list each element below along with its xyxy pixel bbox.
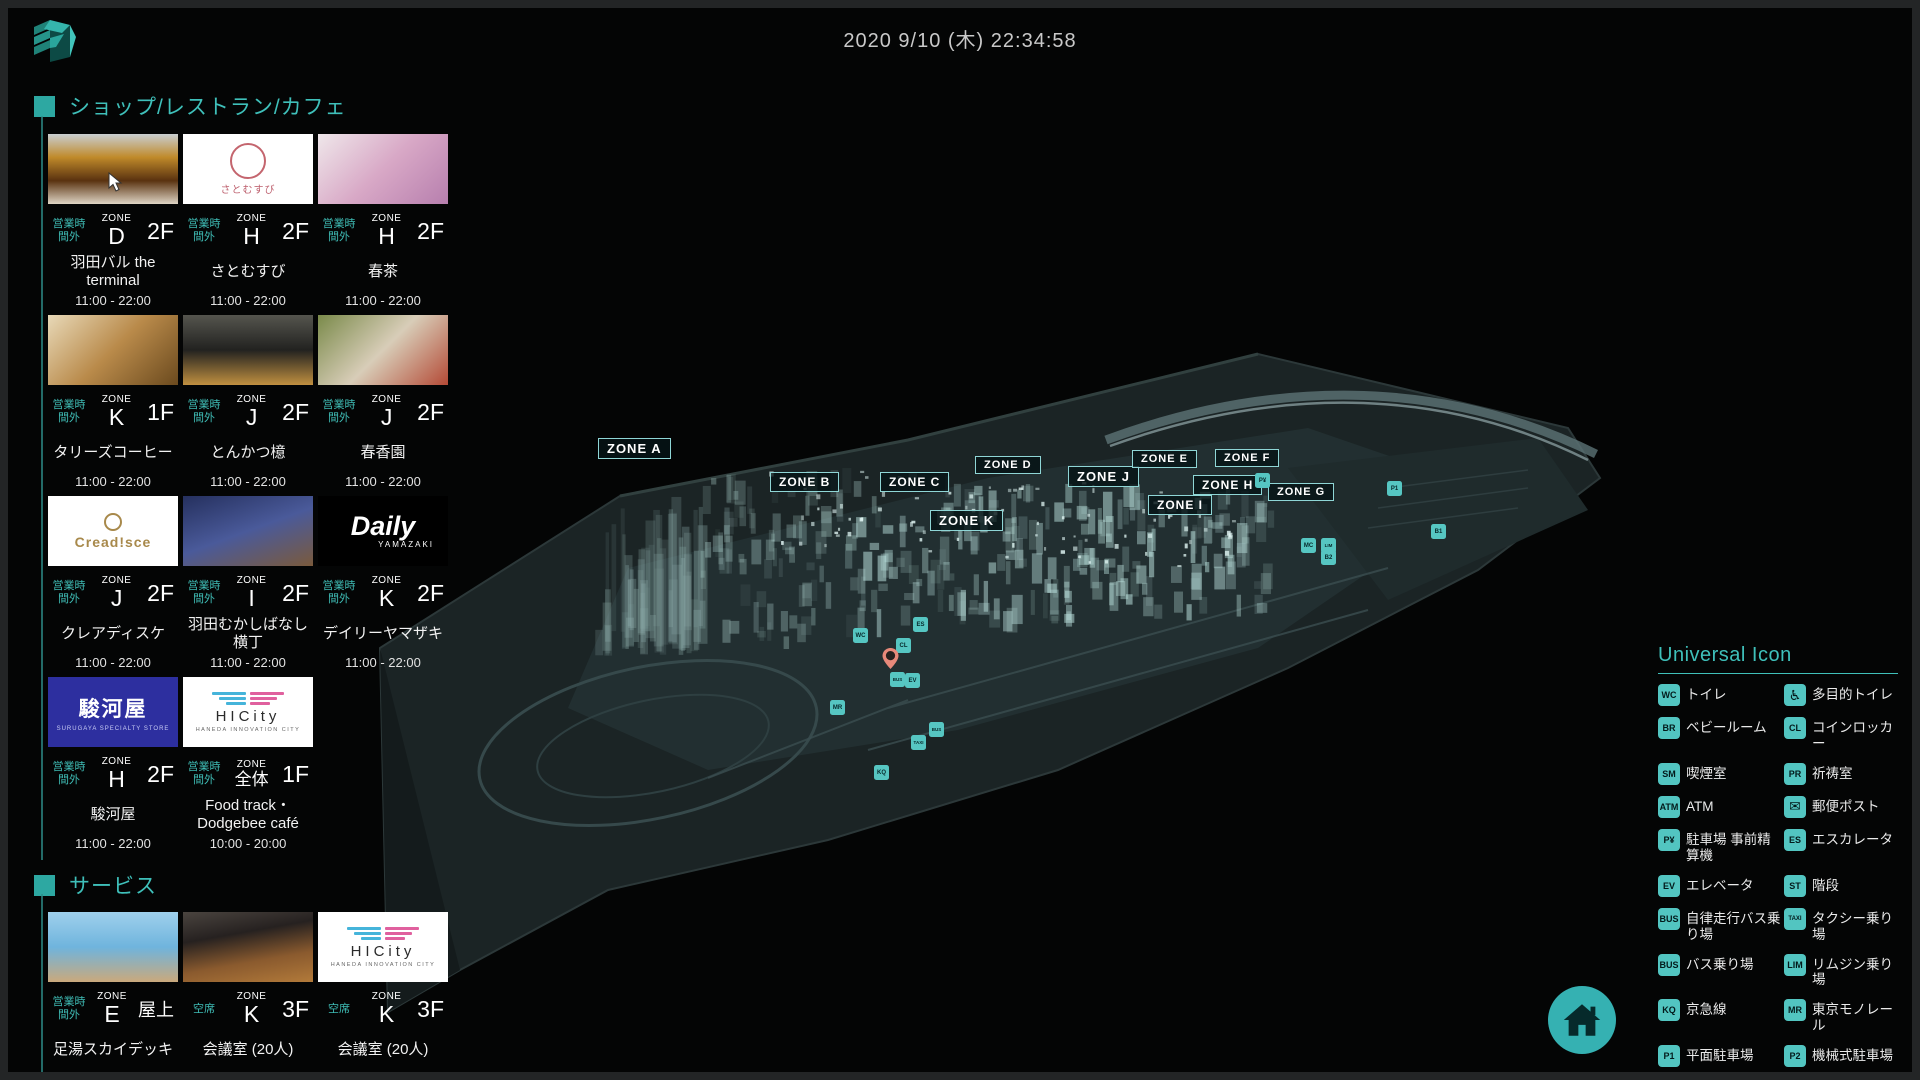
card-meta: 営業時間外ZONED2F [48, 213, 178, 249]
coin-locker-icon: CL [1784, 717, 1806, 739]
legend-item-keikyu-line: KQ京急線 [1658, 999, 1784, 1034]
clock: 2020 9/10 (木) 22:34:58 [8, 24, 1912, 53]
taxi-stand-icon: TAXI [1784, 908, 1806, 930]
bicycle-parking-1-map-icon: B1 [1431, 524, 1446, 539]
shop-name: 駿河屋 [48, 796, 178, 834]
floor-indicator: 2F [417, 399, 444, 426]
prayer-room-icon: PR [1784, 763, 1806, 785]
zone-label-h[interactable]: ZONE H [1193, 475, 1262, 495]
legend-label: 機械式駐車場 [1812, 1045, 1893, 1064]
zone-label-e[interactable]: ZONE E [1132, 450, 1197, 468]
stairs-icon: ST [1784, 875, 1806, 897]
legend-item-autonomous-bus-stop: BUS自律走行バス乗り場 [1658, 908, 1784, 943]
zone-label-c[interactable]: ZONE C [880, 472, 949, 492]
logo-subtext: YAMAZAKI [378, 540, 434, 549]
shop-name: 足湯スカイデッキ [48, 1031, 178, 1069]
section-rule [41, 894, 43, 1072]
post-box-icon: ✉ [1784, 796, 1806, 818]
shop-card[interactable]: さとむすび営業時間外ZONEH2Fさとむすび11:00 - 22:00 [183, 134, 313, 315]
escalator-map-icon: ES [913, 617, 928, 632]
card-meta: 営業時間外ZONEK2F [318, 575, 448, 611]
legend-label: ATM [1686, 796, 1714, 815]
floor-indicator: 2F [147, 761, 174, 788]
shop-thumbnail: HICityHANEDA INNOVATION CITY [183, 677, 313, 747]
shops-section-title: ショップ/レストラン/カフェ [69, 91, 347, 121]
legend-label: 平面駐車場 [1686, 1045, 1754, 1064]
status-badge: 営業時間外 [322, 218, 356, 243]
status-badge: 営業時間外 [187, 218, 221, 243]
card-meta: 空席ZONEK3F [183, 991, 313, 1027]
shop-name: とんかつ檍 [183, 434, 313, 472]
status-badge: 営業時間外 [52, 580, 86, 605]
zone-indicator: ZONEJ [372, 395, 402, 429]
shop-thumbnail: Cread!sce [48, 496, 178, 566]
card-meta: 営業時間外ZONEI2F [183, 575, 313, 611]
shop-hours: 11:00 - 22:00 [48, 474, 178, 489]
bicycle-parking-2-map-icon: B2 [1321, 550, 1336, 565]
logo-text: 駿河屋 [79, 693, 148, 723]
legend-item-bus-stop: BUSバス乗り場 [1658, 954, 1784, 989]
services-section-title: サービス [69, 870, 157, 900]
hicity-wings-icon [212, 692, 284, 705]
shop-hours: 11:00 - 22:00 [183, 474, 313, 489]
shop-card[interactable]: 営業時間外ZONEJ2Fとんかつ檍11:00 - 22:00 [183, 315, 313, 496]
section-bullet [34, 875, 55, 896]
card-meta: 営業時間外ZONE全体1F [183, 756, 313, 792]
legend-label: タクシー乗り場 [1812, 908, 1894, 943]
card-meta: 営業時間外ZONEH2F [183, 213, 313, 249]
status-badge: 営業時間外 [187, 399, 221, 424]
shop-hours: 11:00 - 22:00 [318, 655, 448, 670]
shop-thumbnail [183, 912, 313, 982]
floor-indicator: 2F [417, 580, 444, 607]
shop-card[interactable]: 営業時間外ZONEH2F春茶11:00 - 22:00 [318, 134, 448, 315]
floor-indicator: 2F [282, 399, 309, 426]
legend-rule [1658, 673, 1898, 674]
logo-text: さとむすび [221, 181, 276, 196]
shop-card[interactable]: 営業時間外ZONEE屋上足湯スカイデッキ [48, 912, 178, 1072]
shop-name: Food track・Dodgebee café [183, 796, 313, 834]
legend-label: 喫煙室 [1686, 763, 1727, 782]
shop-thumbnail: さとむすび [183, 134, 313, 204]
shop-hours: 11:00 - 22:00 [48, 655, 178, 670]
legend-item-smoking-room: SM喫煙室 [1658, 763, 1784, 785]
zone-label-d[interactable]: ZONE D [975, 456, 1041, 474]
elevator-icon: EV [1658, 875, 1680, 897]
logo-text: HICity [216, 708, 281, 725]
floor-indicator: 2F [282, 580, 309, 607]
shop-thumbnail: DailyYAMAZAKI [318, 496, 448, 566]
zone-indicator: ZONEI [237, 576, 267, 610]
taxi-stand-map-icon: TAXI [911, 735, 926, 750]
logo-text: HICity [351, 943, 416, 960]
card-meta: 営業時間外ZONEJ2F [48, 575, 178, 611]
shop-name: 会議室 (20人) [318, 1031, 448, 1069]
baby-room-icon: BR [1658, 717, 1680, 739]
flat-parking-icon: P1 [1658, 1045, 1680, 1067]
legend-item-limousine-stop: LIMリムジン乗り場 [1784, 954, 1894, 989]
legend-label: 階段 [1812, 875, 1839, 894]
escalator-icon: ES [1784, 829, 1806, 851]
status-badge: 営業時間外 [52, 399, 86, 424]
parking-pay-machine-icon: P¥ [1658, 829, 1680, 851]
legend-label: 多目的トイレ [1812, 684, 1893, 703]
parking-pay-machine-map-icon: P¥ [1255, 473, 1270, 488]
status-badge: 空席 [187, 1003, 221, 1016]
section-bullet [34, 96, 55, 117]
shop-thumbnail [48, 315, 178, 385]
logo-subtext: SURUGAYA SPECIALTY STORE [57, 726, 170, 732]
smoking-room-icon: SM [1658, 763, 1680, 785]
floor-indicator: 3F [417, 996, 444, 1023]
shop-hours: 11:00 - 22:00 [48, 293, 178, 308]
toilet-icon: WC [1658, 684, 1680, 706]
legend-label: トイレ [1686, 684, 1727, 703]
status-badge: 営業時間外 [322, 580, 356, 605]
legend-label: 東京モノレール [1812, 999, 1894, 1034]
toilet-map-icon: WC [853, 628, 868, 643]
shop-card[interactable]: 営業時間外ZONEI2F羽田むかしばなし横丁11:00 - 22:00 [183, 496, 313, 677]
legend-item-atm: ATMATM [1658, 796, 1784, 818]
bus-stop-map-icon: BUS [929, 722, 944, 737]
home-icon [1562, 1003, 1602, 1037]
shop-hours: 11:00 - 22:00 [48, 836, 178, 851]
card-meta: 営業時間外ZONEJ2F [183, 394, 313, 430]
legend-label: リムジン乗り場 [1812, 954, 1894, 989]
status-badge: 営業時間外 [52, 218, 86, 243]
legend-item-flat-parking: P1平面駐車場 [1658, 1045, 1784, 1067]
shop-card[interactable]: 営業時間外ZONEK1Fタリーズコーヒー11:00 - 22:00 [48, 315, 178, 496]
shop-card[interactable]: 営業時間外ZONEJ2F春香園11:00 - 22:00 [318, 315, 448, 496]
card-meta: 営業時間外ZONEH2F [48, 756, 178, 792]
floor-indicator: 屋上 [138, 996, 174, 1022]
shop-card[interactable]: 営業時間外ZONED2F羽田バル the terminal11:00 - 22:… [48, 134, 178, 315]
card-meta: 空席ZONEK3F [318, 991, 448, 1027]
status-badge: 営業時間外 [52, 996, 86, 1021]
zone-indicator: ZONEH [102, 757, 132, 791]
floor-indicator: 2F [282, 218, 309, 245]
legend-label: エレベータ [1686, 875, 1754, 894]
tokyo-monorail-icon: MR [1784, 999, 1806, 1021]
section-rule [41, 116, 43, 860]
legend-item-post-box: ✉郵便ポスト [1784, 796, 1894, 818]
legend-label: 京急線 [1686, 999, 1727, 1018]
shop-thumbnail [318, 134, 448, 204]
legend-label: 自律走行バス乗り場 [1686, 908, 1784, 943]
shop-card[interactable]: 空席ZONEK3F会議室 (20人) [183, 912, 313, 1072]
shop-thumbnail [183, 496, 313, 566]
legend-item-tokyo-monorail: MR東京モノレール [1784, 999, 1894, 1034]
shop-hours: 11:00 - 22:00 [183, 655, 313, 670]
legend-label: バス乗り場 [1686, 954, 1754, 973]
legend-item-prayer-room: PR祈祷室 [1784, 763, 1894, 785]
kiosk-root: 2020 9/10 (木) 22:34:58 ショップ/レストラン/カフェ 営業… [0, 0, 1920, 1080]
status-badge: 営業時間外 [187, 580, 221, 605]
zone-indicator: ZONEE [97, 992, 127, 1026]
shop-hours: 11:00 - 22:00 [318, 293, 448, 308]
floor-indicator: 3F [282, 996, 309, 1023]
zone-indicator: ZONEH [237, 214, 267, 248]
card-meta: 営業時間外ZONEJ2F [318, 394, 448, 430]
zone-indicator: ZONEK [372, 576, 402, 610]
atm-icon: ATM [1658, 796, 1680, 818]
shop-hours: 10:00 - 20:00 [183, 836, 313, 851]
shop-hours: 11:00 - 22:00 [318, 474, 448, 489]
satomusubi-logo-icon [230, 143, 266, 179]
status-badge: 営業時間外 [52, 761, 86, 786]
shop-name: クレアディスケ [48, 615, 178, 653]
zone-indicator: ZONEK [237, 992, 267, 1026]
logo-text: Daily [351, 513, 416, 540]
legend-label: コインロッカー [1812, 717, 1894, 752]
legend-item-coin-locker: CLコインロッカー [1784, 717, 1894, 752]
hicity-wings-icon [347, 927, 419, 940]
shop-card[interactable]: HICityHANEDA INNOVATION CITY空席ZONEK3F会議室… [318, 912, 448, 1072]
shop-name: タリーズコーヒー [48, 434, 178, 472]
zone-label-g[interactable]: ZONE G [1268, 483, 1334, 501]
shop-name: さとむすび [183, 253, 313, 291]
zone-label-a[interactable]: ZONE A [598, 438, 671, 459]
zone-label-j[interactable]: ZONE J [1068, 466, 1139, 487]
legend-label: 駐車場 事前精算機 [1686, 829, 1784, 864]
shop-name: 会議室 (20人) [183, 1031, 313, 1069]
elevator-map-icon: EV [905, 673, 920, 688]
logo-text: Cread!sce [75, 534, 152, 550]
card-meta: 営業時間外ZONEE屋上 [48, 991, 178, 1027]
shop-hours: 11:00 - 22:00 [183, 293, 313, 308]
shop-name: 春茶 [318, 253, 448, 291]
mouse-cursor [106, 172, 124, 194]
keikyu-line-map-icon: KQ [874, 765, 889, 780]
shop-thumbnail: 駿河屋SURUGAYA SPECIALTY STORE [48, 677, 178, 747]
mechanical-parking-icon: P2 [1784, 1045, 1806, 1067]
universal-icon-legend: Universal Icon WCトイレ♿多目的トイレBRベビールームCLコイン… [1658, 644, 1898, 1080]
shop-name: デイリーヤマザキ [318, 615, 448, 653]
legend-item-taxi-stand: TAXIタクシー乗り場 [1784, 908, 1894, 943]
status-badge: 空席 [322, 1003, 356, 1016]
flat-parking-map-icon: P1 [1387, 481, 1402, 496]
shop-card[interactable]: Cread!sce営業時間外ZONEJ2Fクレアディスケ11:00 - 22:0… [48, 496, 178, 677]
status-badge: 営業時間外 [322, 399, 356, 424]
legend-item-escalator: ESエスカレータ [1784, 829, 1894, 864]
legend-title: Universal Icon [1658, 644, 1898, 667]
legend-item-stairs: ST階段 [1784, 875, 1894, 897]
floor-indicator: 1F [147, 399, 174, 426]
legend-label: 郵便ポスト [1812, 796, 1880, 815]
zone-indicator: ZONEJ [237, 395, 267, 429]
autonomous-bus-stop-map-icon: BUS [890, 672, 905, 687]
legend-item-mechanical-parking: P2機械式駐車場 [1784, 1045, 1894, 1067]
shop-name: 羽田むかしばなし横丁 [183, 615, 313, 653]
zone-indicator: ZONEJ [102, 576, 132, 610]
logo-subtext: HANEDA INNOVATION CITY [331, 962, 436, 968]
zone-label-i[interactable]: ZONE I [1148, 495, 1212, 515]
floor-indicator: 2F [147, 580, 174, 607]
shop-card[interactable]: 駿河屋SURUGAYA SPECIALTY STORE営業時間外ZONEH2F駿… [48, 677, 178, 858]
zone-label-k[interactable]: ZONE K [930, 510, 1003, 531]
card-meta: 営業時間外ZONEK1F [48, 394, 178, 430]
zone-label-b[interactable]: ZONE B [770, 472, 839, 492]
motorcycle-parking-map-icon: MC [1301, 538, 1316, 553]
floor-indicator: 2F [147, 218, 174, 245]
location-pin-icon [882, 648, 899, 674]
floor-indicator: 1F [282, 761, 309, 788]
tokyo-monorail-map-icon: MR [830, 700, 845, 715]
bus-stop-icon: BUS [1658, 954, 1680, 976]
zone-indicator: ZONEH [372, 214, 402, 248]
status-badge: 営業時間外 [187, 761, 221, 786]
owl-logo-icon [104, 513, 122, 531]
zone-indicator: ZONEK [102, 395, 132, 429]
floor-indicator: 2F [417, 218, 444, 245]
legend-label: 祈祷室 [1812, 763, 1853, 782]
limousine-stop-icon: LIM [1784, 954, 1806, 976]
shop-thumbnail [48, 912, 178, 982]
legend-item-toilet: WCトイレ [1658, 684, 1784, 706]
zone-indicator: ZONEK [372, 992, 402, 1026]
legend-item-baby-room: BRベビールーム [1658, 717, 1784, 752]
zone-indicator: ZONE全体 [235, 760, 269, 788]
shop-card[interactable]: DailyYAMAZAKI営業時間外ZONEK2Fデイリーヤマザキ11:00 -… [318, 496, 448, 677]
legend-item-parking-pay-machine: P¥駐車場 事前精算機 [1658, 829, 1784, 864]
home-button[interactable] [1548, 986, 1616, 1054]
logo-subtext: HANEDA INNOVATION CITY [196, 727, 301, 733]
shop-thumbnail [183, 315, 313, 385]
autonomous-bus-stop-icon: BUS [1658, 908, 1680, 930]
shop-thumbnail: HICityHANEDA INNOVATION CITY [318, 912, 448, 982]
shop-thumbnail [318, 315, 448, 385]
legend-label: エスカレータ [1812, 829, 1893, 848]
zone-indicator: ZONED [102, 214, 132, 248]
shop-name: 春香園 [318, 434, 448, 472]
shop-name: 羽田バル the terminal [48, 253, 178, 291]
legend-item-accessible-toilet: ♿多目的トイレ [1784, 684, 1894, 706]
accessible-toilet-icon: ♿ [1784, 684, 1806, 706]
legend-item-elevator: EVエレベータ [1658, 875, 1784, 897]
legend-label: ベビールーム [1686, 717, 1767, 736]
keikyu-line-icon: KQ [1658, 999, 1680, 1021]
zone-label-f[interactable]: ZONE F [1215, 449, 1279, 467]
shop-card[interactable]: HICityHANEDA INNOVATION CITY営業時間外ZONE全体1… [183, 677, 313, 858]
services-section-header: サービス [34, 870, 157, 900]
shops-section-header: ショップ/レストラン/カフェ [34, 91, 347, 121]
card-meta: 営業時間外ZONEH2F [318, 213, 448, 249]
